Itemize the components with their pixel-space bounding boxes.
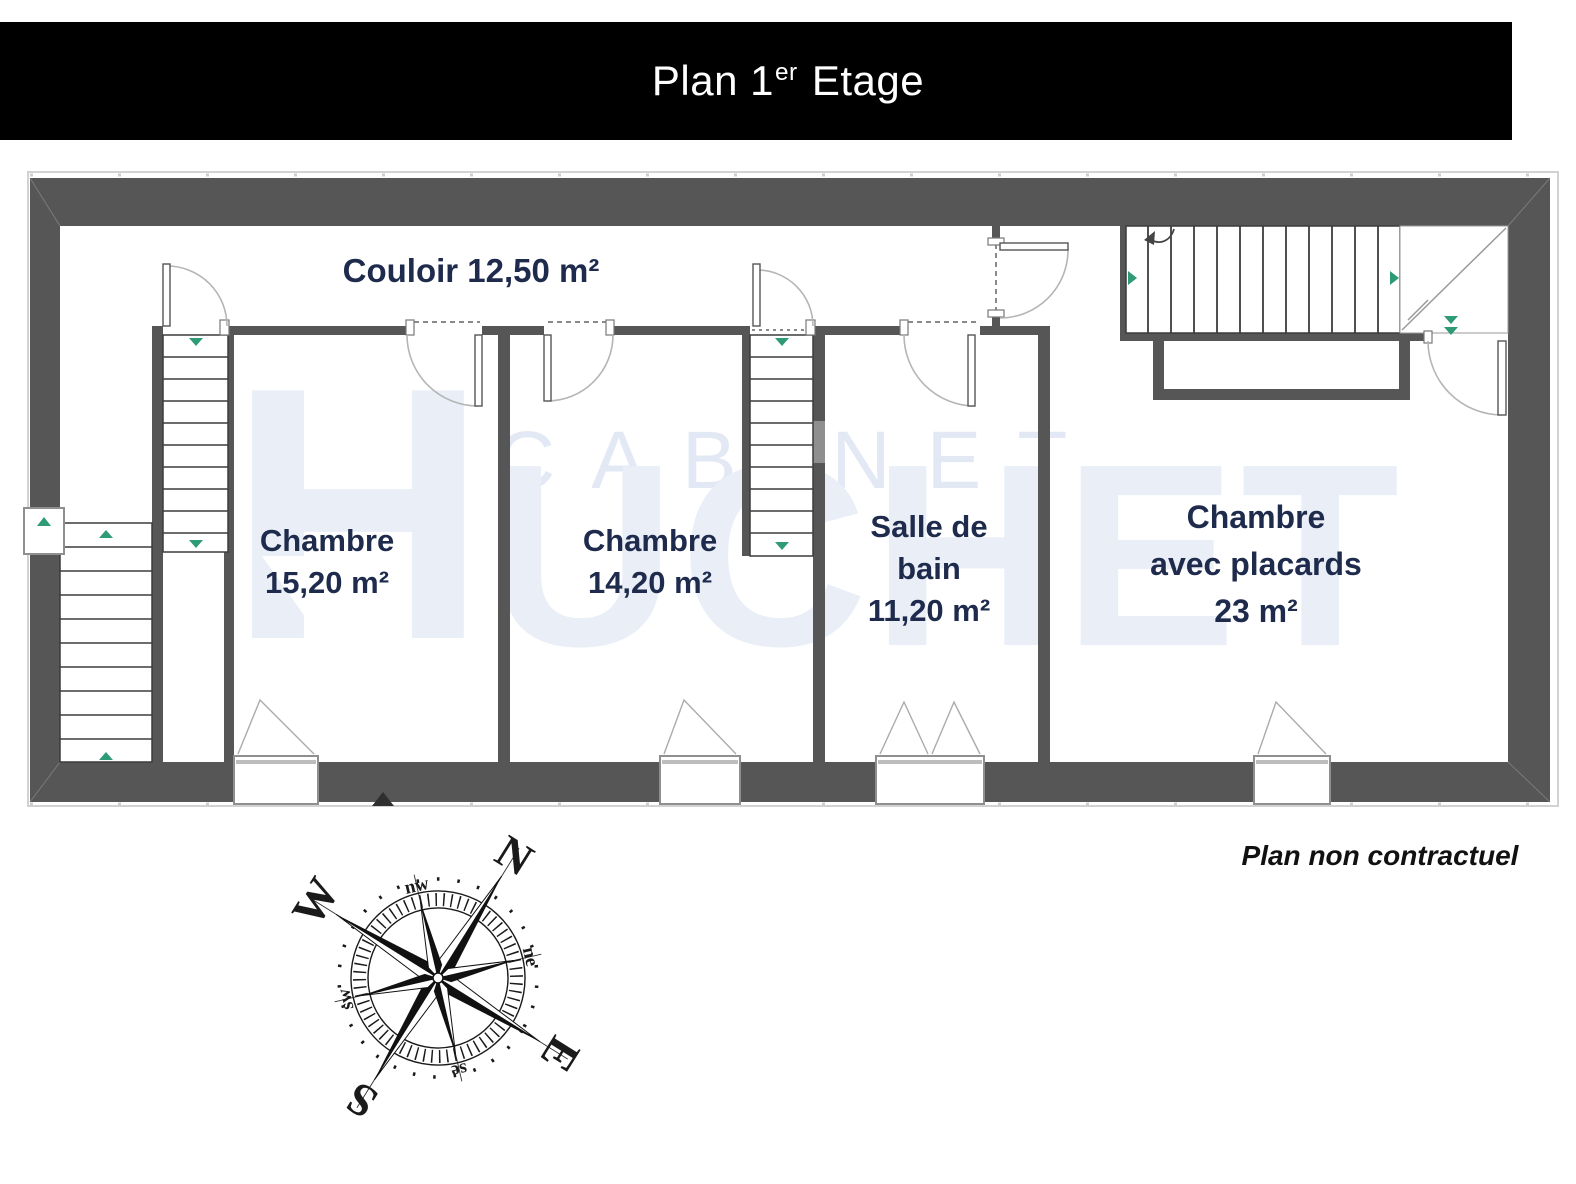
compass-ne-label: ne [518,945,543,968]
staircase-left-lower [60,523,152,762]
compass-s-label: S [337,1072,386,1129]
stair-landing [1400,226,1508,333]
room-label-line: Couloir 12,50 m² [343,250,600,292]
plan-edge-marker [372,792,394,806]
watermark-huchet-initial: H [228,338,488,690]
compass-rose-icon: N E S W nw ne se sw [273,813,603,1143]
page-title: Plan 1er Etage [0,22,1576,140]
title-suffix: Etage [800,57,924,104]
watermark-huchet: HUCHET [228,338,1404,690]
compass-se-label: se [449,1058,469,1082]
compass-n-label: N [487,825,542,886]
footer-note: Plan non contractuel [1160,840,1576,872]
staircase-left-upper [163,335,228,552]
title-superscript: er [775,59,798,86]
floor-plan-page: { "title": { "prefix": "Plan 1", "supers… [0,0,1576,1184]
compass-nw-label: nw [403,873,432,899]
staircase-main [1126,226,1400,333]
compass-sw-label: sw [333,986,358,1012]
compass-e-label: E [531,1028,591,1081]
room-label-couloir: Couloir 12,50 m² [343,250,600,292]
title-prefix: Plan 1 [652,57,774,104]
watermark-huchet-rest: UCHET [488,426,1404,686]
compass-w-label: W [282,868,350,934]
